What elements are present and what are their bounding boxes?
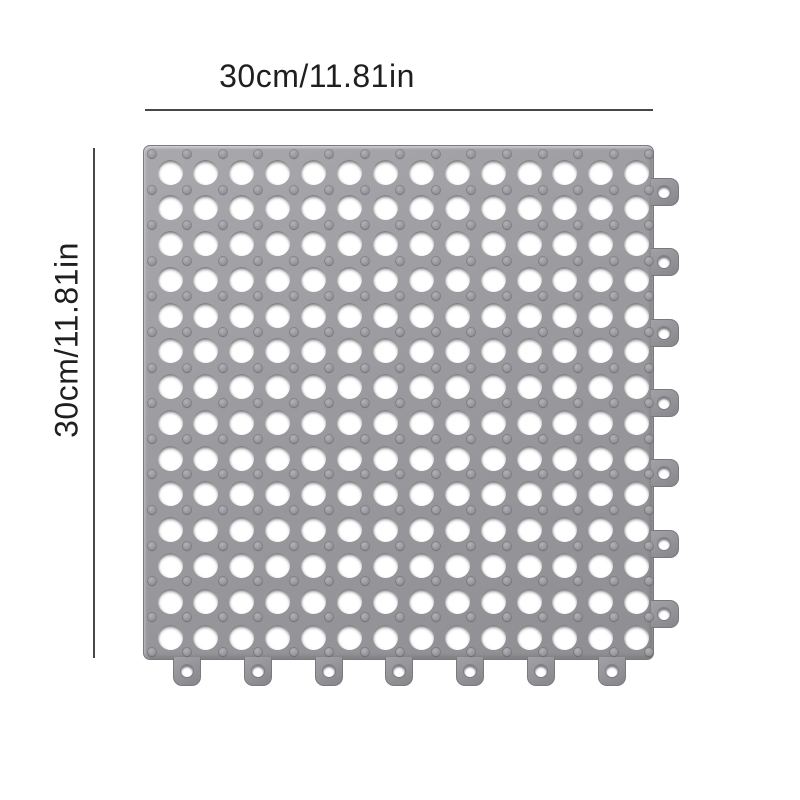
anti-slip-bump	[254, 292, 262, 300]
drain-hole	[229, 231, 254, 256]
drain-hole	[229, 446, 254, 471]
anti-slip-bump	[396, 470, 404, 478]
connector-ring-hole	[323, 665, 335, 677]
anti-slip-bump	[396, 364, 404, 372]
drain-hole	[517, 625, 542, 650]
anti-slip-bump	[290, 613, 298, 621]
drain-hole	[517, 374, 542, 399]
drain-hole	[481, 231, 506, 256]
anti-slip-bump	[290, 506, 298, 514]
anti-slip-bump	[325, 470, 333, 478]
connector-loop-bottom	[385, 657, 413, 686]
drain-hole	[624, 195, 649, 220]
anti-slip-bump	[467, 150, 475, 158]
anti-slip-bump	[148, 399, 156, 407]
drain-hole	[517, 338, 542, 363]
anti-slip-bump	[574, 221, 582, 229]
anti-slip-bump	[148, 364, 156, 372]
anti-slip-bump	[219, 506, 227, 514]
drain-hole	[158, 589, 183, 614]
anti-slip-bump	[539, 186, 547, 194]
anti-slip-bump	[645, 542, 653, 550]
drain-hole	[373, 481, 398, 506]
anti-slip-bump	[610, 328, 618, 336]
drain-hole	[158, 374, 183, 399]
anti-slip-bump	[148, 221, 156, 229]
drain-hole	[229, 625, 254, 650]
drain-hole	[624, 589, 649, 614]
drain-hole	[229, 481, 254, 506]
anti-slip-bump	[610, 257, 618, 265]
anti-slip-bump	[183, 399, 191, 407]
drain-hole	[409, 481, 434, 506]
anti-slip-bump	[325, 364, 333, 372]
drain-hole	[301, 553, 326, 578]
anti-slip-bump	[645, 613, 653, 621]
drain-hole	[265, 160, 290, 185]
anti-slip-bump	[574, 470, 582, 478]
anti-slip-bump	[574, 613, 582, 621]
anti-slip-bump	[254, 648, 262, 656]
anti-slip-bump	[361, 577, 369, 585]
anti-slip-bump	[610, 364, 618, 372]
connector-loop-right	[651, 459, 679, 487]
anti-slip-bump	[432, 328, 440, 336]
drain-hole	[445, 267, 470, 292]
drain-hole	[265, 195, 290, 220]
anti-slip-bump	[325, 257, 333, 265]
anti-slip-bump	[219, 364, 227, 372]
anti-slip-bump	[290, 292, 298, 300]
anti-slip-bump	[148, 150, 156, 158]
anti-slip-bump	[254, 186, 262, 194]
anti-slip-bump	[467, 470, 475, 478]
anti-slip-bump	[396, 542, 404, 550]
anti-slip-bump	[503, 435, 511, 443]
anti-slip-bump	[574, 577, 582, 585]
connector-ring-hole	[393, 665, 405, 677]
drain-hole	[301, 303, 326, 328]
anti-slip-bump	[503, 221, 511, 229]
drain-hole	[301, 267, 326, 292]
drain-hole	[409, 160, 434, 185]
drain-hole	[265, 517, 290, 542]
anti-slip-bump	[645, 292, 653, 300]
drain-hole	[445, 160, 470, 185]
anti-slip-bump	[396, 292, 404, 300]
anti-slip-bump	[503, 542, 511, 550]
anti-slip-bump	[396, 648, 404, 656]
anti-slip-bump	[610, 577, 618, 585]
drain-hole	[517, 267, 542, 292]
anti-slip-bump	[183, 328, 191, 336]
drain-hole	[301, 589, 326, 614]
anti-slip-bump	[290, 221, 298, 229]
anti-slip-bump	[361, 613, 369, 621]
anti-slip-bump	[254, 150, 262, 158]
connector-ring-hole	[181, 665, 193, 677]
anti-slip-bump	[148, 257, 156, 265]
connector-loop-bottom	[598, 657, 626, 686]
drain-hole	[229, 303, 254, 328]
drain-hole	[373, 553, 398, 578]
anti-slip-bump	[254, 506, 262, 514]
anti-slip-bump	[432, 506, 440, 514]
drain-hole	[588, 410, 613, 435]
anti-slip-bump	[219, 150, 227, 158]
connector-ring-hole	[658, 256, 670, 268]
drain-hole	[229, 517, 254, 542]
drain-hole	[193, 231, 218, 256]
drain-hole	[301, 231, 326, 256]
anti-slip-bump	[645, 364, 653, 372]
drain-hole	[552, 481, 577, 506]
drain-hole	[481, 374, 506, 399]
drain-hole	[517, 410, 542, 435]
anti-slip-bump	[574, 328, 582, 336]
anti-slip-bump	[361, 506, 369, 514]
anti-slip-bump	[467, 328, 475, 336]
drain-hole	[481, 553, 506, 578]
anti-slip-bump	[574, 435, 582, 443]
drain-hole	[624, 625, 649, 650]
anti-slip-bump	[539, 577, 547, 585]
anti-slip-bump	[574, 506, 582, 514]
anti-slip-bump	[361, 399, 369, 407]
drain-hole	[265, 303, 290, 328]
anti-slip-bump	[645, 186, 653, 194]
drain-hole	[301, 195, 326, 220]
connector-ring-hole	[658, 608, 670, 620]
connector-loop-bottom	[315, 657, 343, 686]
connector-loop-right	[651, 178, 679, 206]
anti-slip-bump	[645, 435, 653, 443]
drain-hole	[265, 589, 290, 614]
top-dimension-label: 30cm/11.81in	[219, 58, 415, 95]
drain-hole	[481, 303, 506, 328]
drain-hole	[552, 303, 577, 328]
anti-slip-bump	[219, 292, 227, 300]
anti-slip-bump	[290, 257, 298, 265]
drain-hole	[517, 231, 542, 256]
anti-slip-bump	[254, 542, 262, 550]
drain-hole	[481, 160, 506, 185]
anti-slip-bump	[148, 186, 156, 194]
anti-slip-bump	[467, 186, 475, 194]
drain-hole	[552, 160, 577, 185]
connector-loop-right	[651, 248, 679, 276]
drain-hole	[552, 553, 577, 578]
drain-hole	[373, 160, 398, 185]
anti-slip-bump	[183, 186, 191, 194]
drain-hole	[158, 446, 183, 471]
drain-hole	[481, 589, 506, 614]
drain-hole	[158, 338, 183, 363]
anti-slip-bump	[219, 577, 227, 585]
drain-hole	[409, 374, 434, 399]
drain-hole	[158, 303, 183, 328]
drain-hole	[588, 589, 613, 614]
anti-slip-bump	[361, 186, 369, 194]
anti-slip-bump	[503, 470, 511, 478]
drain-hole	[624, 160, 649, 185]
anti-slip-bump	[183, 613, 191, 621]
drain-hole	[588, 517, 613, 542]
left-dimension-label: 30cm/11.81in	[49, 242, 86, 438]
anti-slip-bump	[503, 186, 511, 194]
anti-slip-bump	[361, 542, 369, 550]
connector-ring-hole	[252, 665, 264, 677]
drain-hole	[445, 517, 470, 542]
drain-hole	[624, 410, 649, 435]
anti-slip-bump	[219, 542, 227, 550]
drain-hole	[301, 481, 326, 506]
drain-hole	[337, 195, 362, 220]
anti-slip-bump	[148, 435, 156, 443]
anti-slip-bump	[290, 328, 298, 336]
anti-slip-bump	[610, 435, 618, 443]
drain-hole	[517, 517, 542, 542]
drain-hole	[624, 517, 649, 542]
drain-hole	[229, 553, 254, 578]
anti-slip-bump	[574, 648, 582, 656]
anti-slip-bump	[290, 435, 298, 443]
anti-slip-bump	[539, 221, 547, 229]
drain-hole	[229, 410, 254, 435]
anti-slip-bump	[503, 364, 511, 372]
anti-slip-bump	[467, 435, 475, 443]
drain-hole	[624, 303, 649, 328]
anti-slip-bump	[290, 542, 298, 550]
drain-hole	[193, 517, 218, 542]
anti-slip-bump	[467, 292, 475, 300]
drain-hole	[445, 338, 470, 363]
drain-hole	[373, 303, 398, 328]
anti-slip-bump	[574, 364, 582, 372]
connector-loop-bottom	[527, 657, 555, 686]
anti-slip-bump	[467, 613, 475, 621]
drain-hole	[481, 446, 506, 471]
drain-hole	[337, 374, 362, 399]
anti-slip-bump	[645, 257, 653, 265]
drain-hole	[445, 481, 470, 506]
drain-hole	[588, 625, 613, 650]
anti-slip-bump	[361, 150, 369, 158]
anti-slip-bump	[396, 399, 404, 407]
drain-hole	[588, 267, 613, 292]
drain-hole	[301, 446, 326, 471]
anti-slip-bump	[539, 435, 547, 443]
drain-hole	[588, 481, 613, 506]
drain-hole	[265, 625, 290, 650]
drain-hole	[588, 446, 613, 471]
anti-slip-bump	[219, 257, 227, 265]
anti-slip-bump	[396, 150, 404, 158]
drain-hole	[517, 446, 542, 471]
anti-slip-bump	[503, 648, 511, 656]
anti-slip-bump	[290, 186, 298, 194]
drain-hole	[624, 338, 649, 363]
anti-slip-bump	[290, 648, 298, 656]
anti-slip-bump	[432, 435, 440, 443]
anti-slip-bump	[254, 435, 262, 443]
anti-slip-bump	[325, 648, 333, 656]
anti-slip-bump	[432, 613, 440, 621]
drain-hole	[337, 589, 362, 614]
drain-hole	[409, 303, 434, 328]
drain-hole	[193, 553, 218, 578]
anti-slip-bump	[148, 470, 156, 478]
anti-slip-bump	[148, 648, 156, 656]
drain-hole	[337, 625, 362, 650]
anti-slip-bump	[254, 221, 262, 229]
connector-loop-right	[651, 319, 679, 347]
drain-hole	[265, 553, 290, 578]
drain-hole	[301, 625, 326, 650]
anti-slip-bump	[645, 648, 653, 656]
anti-slip-bump	[503, 399, 511, 407]
anti-slip-bump	[290, 470, 298, 478]
drain-hole	[552, 195, 577, 220]
anti-slip-bump	[361, 364, 369, 372]
drain-hole	[158, 481, 183, 506]
drain-hole	[337, 267, 362, 292]
anti-slip-bump	[254, 613, 262, 621]
drain-hole	[624, 481, 649, 506]
drain-hole	[517, 481, 542, 506]
anti-slip-bump	[396, 435, 404, 443]
drain-hole	[265, 231, 290, 256]
anti-slip-bump	[325, 221, 333, 229]
drain-hole	[158, 625, 183, 650]
drain-hole	[445, 374, 470, 399]
connector-ring-hole	[606, 665, 618, 677]
anti-slip-bump	[432, 648, 440, 656]
anti-slip-bump	[148, 506, 156, 514]
anti-slip-bump	[503, 506, 511, 514]
drain-hole	[265, 374, 290, 399]
connector-loop-right	[651, 389, 679, 417]
drain-hole	[409, 267, 434, 292]
anti-slip-bump	[574, 542, 582, 550]
drain-hole	[445, 303, 470, 328]
anti-slip-bump	[219, 221, 227, 229]
anti-slip-bump	[183, 257, 191, 265]
anti-slip-bump	[539, 470, 547, 478]
anti-slip-bump	[148, 292, 156, 300]
drain-hole	[229, 160, 254, 185]
anti-slip-bump	[396, 221, 404, 229]
anti-slip-bump	[645, 506, 653, 514]
anti-slip-bump	[610, 542, 618, 550]
drain-mat-tile	[143, 145, 654, 660]
drain-hole	[552, 267, 577, 292]
drain-hole	[552, 446, 577, 471]
drain-hole	[409, 553, 434, 578]
drain-hole	[588, 374, 613, 399]
anti-slip-bump	[503, 577, 511, 585]
anti-slip-bump	[148, 542, 156, 550]
anti-slip-bump	[290, 577, 298, 585]
anti-slip-bump	[432, 292, 440, 300]
anti-slip-bump	[325, 186, 333, 194]
drain-hole	[481, 517, 506, 542]
drain-hole	[301, 410, 326, 435]
anti-slip-bump	[396, 186, 404, 194]
drain-hole	[624, 267, 649, 292]
drain-hole	[265, 410, 290, 435]
anti-slip-bump	[467, 577, 475, 585]
anti-slip-bump	[325, 542, 333, 550]
anti-slip-bump	[539, 542, 547, 550]
drain-hole	[517, 160, 542, 185]
drain-hole	[445, 589, 470, 614]
drain-hole	[409, 338, 434, 363]
drain-hole	[265, 267, 290, 292]
drain-hole	[588, 553, 613, 578]
anti-slip-bump	[539, 613, 547, 621]
drain-hole	[445, 410, 470, 435]
drain-hole	[337, 303, 362, 328]
drain-hole	[158, 410, 183, 435]
anti-slip-bump	[219, 435, 227, 443]
drain-hole	[517, 303, 542, 328]
connector-loop-bottom	[173, 657, 201, 686]
anti-slip-bump	[361, 328, 369, 336]
anti-slip-bump	[539, 257, 547, 265]
connector-loop-bottom	[244, 657, 272, 686]
drain-hole	[517, 553, 542, 578]
connector-ring-hole	[658, 327, 670, 339]
connector-loop-bottom	[456, 657, 484, 686]
anti-slip-bump	[361, 470, 369, 478]
anti-slip-bump	[396, 328, 404, 336]
anti-slip-bump	[432, 542, 440, 550]
anti-slip-bump	[183, 364, 191, 372]
anti-slip-bump	[148, 613, 156, 621]
anti-slip-bump	[396, 577, 404, 585]
anti-slip-bump	[396, 506, 404, 514]
anti-slip-bump	[219, 470, 227, 478]
drain-hole	[552, 231, 577, 256]
drain-hole	[373, 195, 398, 220]
anti-slip-bump	[432, 364, 440, 372]
drain-hole	[337, 553, 362, 578]
anti-slip-bump	[183, 577, 191, 585]
anti-slip-bump	[574, 257, 582, 265]
anti-slip-bump	[148, 577, 156, 585]
connector-loop-right	[651, 530, 679, 558]
anti-slip-bump	[219, 613, 227, 621]
anti-slip-bump	[467, 221, 475, 229]
connector-ring-hole	[464, 665, 476, 677]
drain-hole	[193, 195, 218, 220]
anti-slip-bump	[148, 328, 156, 336]
drain-hole	[588, 338, 613, 363]
anti-slip-bump	[183, 470, 191, 478]
anti-slip-bump	[325, 399, 333, 407]
anti-slip-bump	[219, 648, 227, 656]
anti-slip-bump	[574, 150, 582, 158]
drain-hole	[481, 338, 506, 363]
drain-hole	[337, 481, 362, 506]
drain-hole	[229, 267, 254, 292]
anti-slip-bump	[183, 506, 191, 514]
drain-hole	[373, 231, 398, 256]
drain-hole	[337, 410, 362, 435]
drain-hole	[373, 625, 398, 650]
anti-slip-bump	[467, 506, 475, 514]
